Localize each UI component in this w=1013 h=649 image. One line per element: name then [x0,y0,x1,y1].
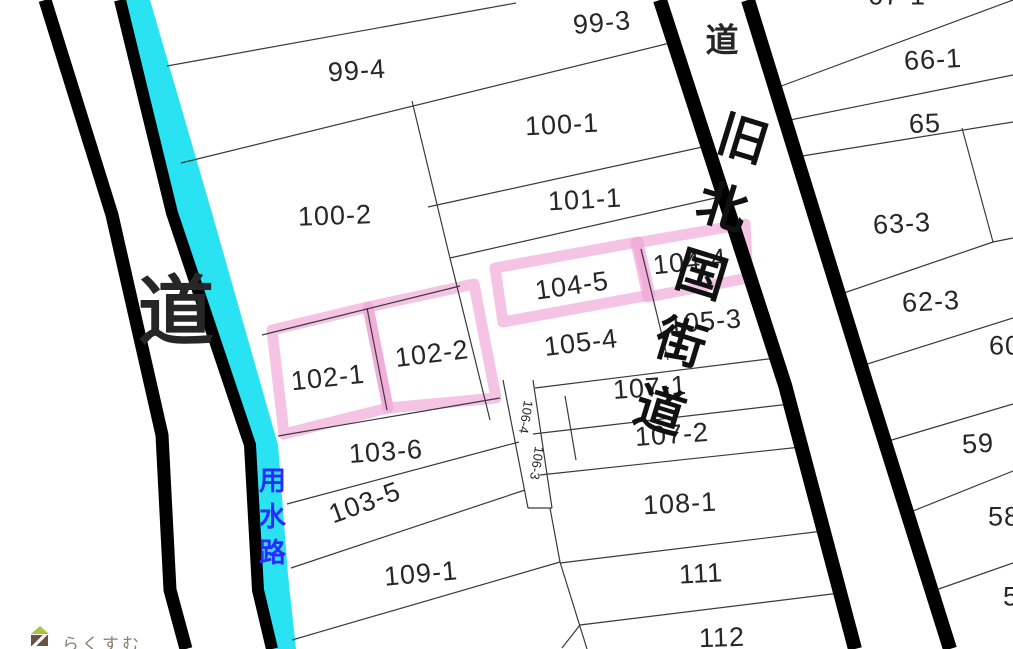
boundary-line [785,75,1013,121]
parcel-label-62-3: 62-3 [901,287,960,317]
highway-east-edge [748,0,950,649]
boundary-line [560,562,587,649]
parcel-label-99-3: 99-3 [572,7,632,39]
waterway-label: 用水路 [253,466,283,574]
parcel-label-60: 60 [989,333,1013,360]
boundary-line [796,122,1013,157]
parcel-label-100-1: 100-1 [524,110,599,141]
boundary-line [412,101,490,420]
cadastral-map: 99-3 99-4 100-1 100-2 101-1 102-1 102-2 … [0,0,1013,649]
parcel-label-59: 59 [961,430,994,459]
watermark-house-shape [31,635,48,646]
parcel-label-67-1: 67-1 [868,0,926,10]
boundary-line [885,404,1013,442]
parcel-label-101-1: 101-1 [547,185,622,216]
watermark-text: らくすむ [62,630,142,649]
left-road-label: 道 [138,275,214,351]
boundary-line [533,380,552,508]
parcel-label-63-3: 63-3 [872,209,931,239]
boundary-line [550,508,560,562]
parcel-label-109-1: 109-1 [383,557,459,590]
parcel-label-99-4: 99-4 [327,56,387,87]
boundary-line [565,396,576,460]
parcel-label-100-2: 100-2 [298,201,373,231]
boundary-line [367,308,387,410]
parcel-label-108-1: 108-1 [642,489,717,520]
boundary-line [181,42,674,163]
top-road-label: 道 [706,24,739,57]
boundary-line [262,286,460,335]
boundary-line [962,128,993,242]
parcel-label-65: 65 [909,110,942,138]
parcel-label-111: 111 [678,559,723,588]
watermark-roof-shape [31,626,49,634]
boundary-line [776,0,1013,88]
parcel-label-103-6: 103-6 [348,436,424,468]
parcel-label-112: 112 [699,624,746,649]
boundary-line [933,563,1013,591]
parcel-label-58: 58 [988,504,1013,531]
parcel-label-66-1: 66-1 [903,45,962,75]
watermark-house-icon [29,626,53,646]
parcel-label-57-partial: 5 [1003,584,1013,611]
